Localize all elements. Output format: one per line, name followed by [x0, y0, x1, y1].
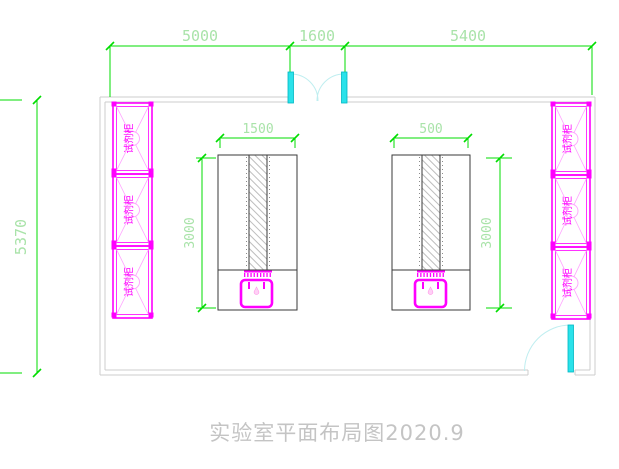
dim-left-bench-width-label: 1500: [242, 122, 273, 137]
reagent-cabinet-label: 试剂柜: [123, 195, 136, 225]
door-leaf: [288, 72, 294, 103]
reagent-cabinet: 试剂柜: [551, 102, 592, 176]
dim-top-right-label: 5400: [450, 27, 486, 45]
dim-right-bench-depth-label: 3000: [480, 217, 495, 248]
dim-right-bench-width-label: 500: [419, 122, 442, 137]
sink-icon: [415, 272, 446, 308]
lab-bench-left: [218, 155, 297, 310]
reagent-cabinet-column-left: 试剂柜 试剂柜 试剂柜: [112, 102, 154, 319]
dim-top-left-label: 5000: [182, 27, 218, 45]
dim-left-overall-label: 5370: [12, 219, 30, 255]
top-dimension: [106, 42, 596, 97]
sink-icon: [241, 272, 272, 308]
bottom-right-door: [525, 325, 574, 372]
door-leaf: [342, 72, 348, 103]
reagent-cabinet: 试剂柜: [551, 246, 592, 320]
door-swing-arc: [291, 74, 318, 101]
wall-outer-line: [100, 97, 595, 375]
wall-inner-line: [105, 102, 590, 370]
drawing-title: 实验室平面布局图2020.9: [209, 421, 464, 445]
reagent-cabinet-label: 试剂柜: [123, 124, 136, 154]
bench-reagent-shelf: [249, 155, 267, 270]
reagent-cabinet-label: 试剂柜: [561, 124, 574, 154]
reagent-cabinet-label: 试剂柜: [561, 268, 574, 298]
reagent-cabinet: 试剂柜: [112, 102, 154, 175]
dim-left-bench-depth-label: 3000: [183, 217, 198, 248]
door-swing-arc: [317, 74, 344, 101]
dim-top-door-label: 1600: [299, 27, 335, 45]
floor-plan-drawing: 5000 1600 5400 5370: [0, 0, 619, 469]
door-leaf: [568, 325, 574, 372]
reagent-cabinet-label: 试剂柜: [123, 267, 136, 297]
lab-bench-right: [392, 155, 470, 310]
reagent-cabinet: 试剂柜: [551, 174, 592, 248]
top-double-door: [288, 72, 347, 103]
reagent-cabinet: 试剂柜: [112, 245, 154, 319]
left-bench-depth-dimension: [196, 154, 216, 312]
reagent-cabinet-label: 试剂柜: [561, 196, 574, 226]
room-walls: [100, 97, 595, 375]
door-swing-arc: [525, 325, 571, 371]
reagent-cabinet-column-right: 试剂柜 试剂柜 试剂柜: [551, 102, 592, 320]
reagent-cabinet: 试剂柜: [112, 173, 154, 247]
bench-reagent-shelf: [422, 155, 440, 270]
